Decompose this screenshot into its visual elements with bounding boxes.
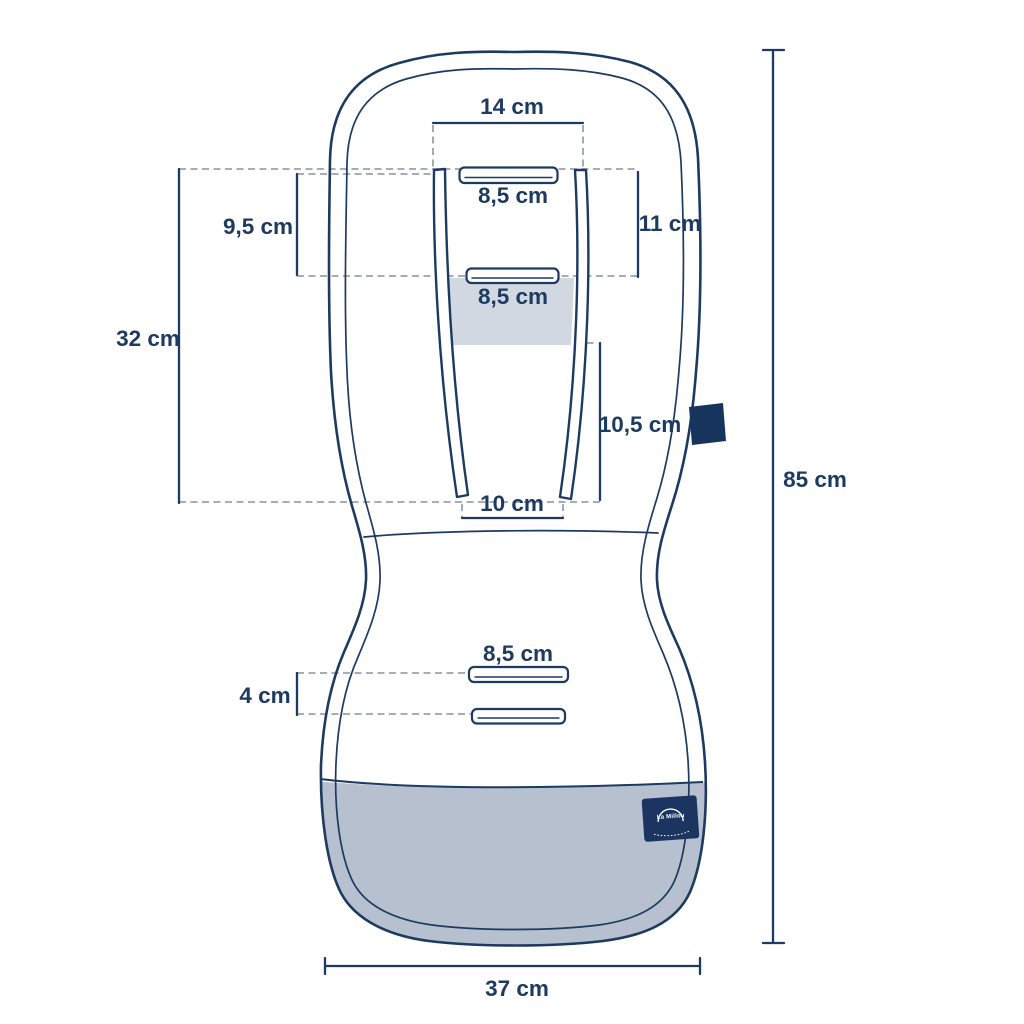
brand-badge: La Millou <box>642 795 700 842</box>
dim-label-lower-strap-length: 10,5 cm <box>599 412 682 437</box>
diagram-canvas: La Millou 14 cm 8,5 cm 9,5 cm 11 cm 8,5 … <box>0 0 1024 1024</box>
seat-lower-slot <box>472 709 565 724</box>
dim-label-seat-slot-spacing: 4 cm <box>239 683 290 708</box>
dim-label-top-width: 14 cm <box>480 94 544 119</box>
dim-label-backrest-length: 32 cm <box>116 326 180 351</box>
mid-shoulder-slot <box>467 269 559 284</box>
dim-label-upper-right-spacing: 11 cm <box>639 211 702 236</box>
dimension-diagram: La Millou 14 cm 8,5 cm 9,5 cm 11 cm 8,5 … <box>0 0 1024 1024</box>
dim-label-total-length: 85 cm <box>783 467 847 492</box>
dim-label-mid-slot-width: 8,5 cm <box>478 284 548 309</box>
dim-label-upper-slot-width: 8,5 cm <box>478 183 548 208</box>
dim-line-total-length <box>763 50 784 943</box>
side-tab <box>689 403 726 445</box>
dim-label-seat-slot-width: 8,5 cm <box>483 641 553 666</box>
dim-label-upper-left-spacing: 9,5 cm <box>223 214 293 239</box>
seat-upper-slot <box>469 667 568 682</box>
waist-seam-line <box>364 531 658 537</box>
upper-left-shoulder-slot <box>460 168 558 184</box>
dim-label-bottom-width: 37 cm <box>485 976 549 1001</box>
dim-label-strap-bottom-gap: 10 cm <box>480 491 544 516</box>
dim-line-bottom-width <box>325 958 700 974</box>
